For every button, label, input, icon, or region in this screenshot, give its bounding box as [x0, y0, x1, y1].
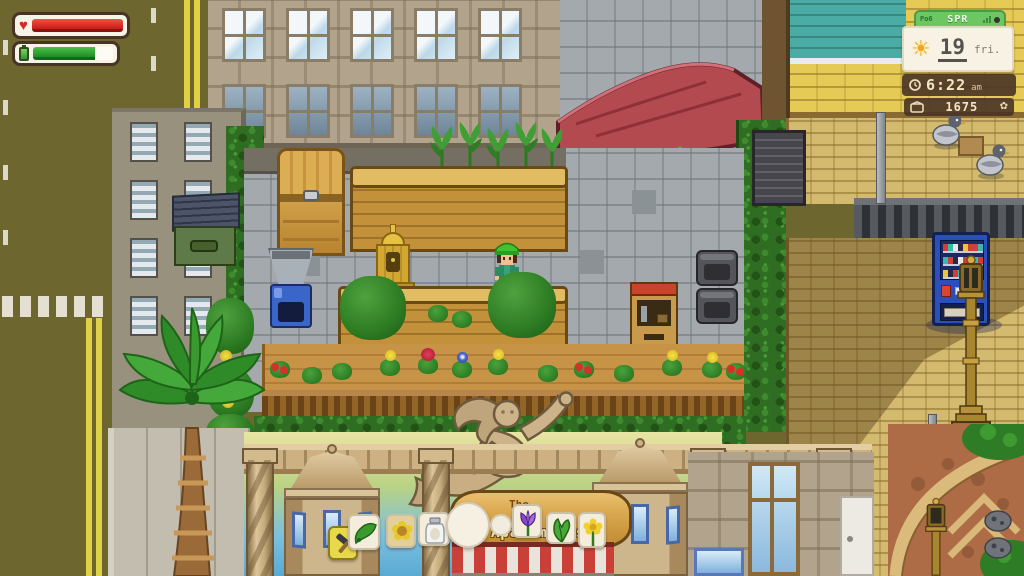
- yellow-tulip[interactable]: [702, 352, 722, 378]
- money-text: 1675: [945, 100, 978, 114]
- item-bubble-egg[interactable]: [446, 502, 490, 548]
- tall-window-mullion: [770, 462, 774, 576]
- heart-icon: ♥: [19, 18, 28, 33]
- turret-cap: [590, 444, 690, 484]
- calendar-card: ☀ 19 fri.: [902, 26, 1014, 72]
- clock-icon: [909, 79, 921, 91]
- crosswalk: [2, 296, 13, 317]
- tomato-plant[interactable]: [574, 352, 594, 378]
- office-window: [286, 84, 330, 138]
- green-plant[interactable]: [302, 358, 322, 384]
- teal-rooftop: [790, 0, 906, 64]
- camera-dot-icon: [994, 17, 1000, 23]
- office-window: [478, 8, 522, 62]
- paving-tile: [580, 250, 604, 274]
- planter-bush: [340, 276, 406, 340]
- turret-window: [631, 504, 649, 544]
- energy-bar: [12, 41, 120, 66]
- money-bar: 1675 ✿: [904, 98, 1014, 116]
- drain-pipe: [876, 112, 886, 204]
- turret-window: [292, 511, 306, 548]
- item-bubble-pearl[interactable]: [490, 514, 512, 536]
- machine-highlight: [274, 288, 282, 298]
- office-window: [222, 8, 266, 62]
- item-bubble-daffodil[interactable]: [578, 512, 606, 548]
- road-center-line: [86, 318, 92, 576]
- road-edge-dash: [151, 8, 156, 23]
- cobble-path: [888, 424, 1024, 576]
- metal-chair[interactable]: [696, 250, 738, 286]
- white-cabinet[interactable]: [840, 496, 874, 576]
- chair-seat: [704, 264, 730, 280]
- slab-window: [130, 180, 158, 220]
- office-window: [350, 84, 394, 138]
- slab-window: [184, 122, 212, 162]
- green-plant[interactable]: [332, 354, 352, 380]
- clock-hud: Po6 SPR ☀ 19 fri. 6:22 am: [902, 10, 1016, 112]
- building-corner-strip: [762, 0, 790, 134]
- road-center-line: [96, 318, 102, 576]
- turret-window: [666, 505, 680, 544]
- signal-camera-group: [983, 16, 1000, 23]
- signal-icon: [986, 18, 988, 23]
- trunk-groove: [283, 220, 339, 223]
- day-number: 19: [938, 36, 967, 61]
- metal-chair[interactable]: [696, 288, 738, 324]
- paving-tile: [632, 190, 656, 214]
- planter-bush: [488, 272, 556, 338]
- item-bubble-lettuce[interactable]: [546, 512, 576, 544]
- vending-cans-row: [943, 244, 983, 253]
- health-fill: [32, 19, 123, 32]
- road-edge-dash: [3, 40, 8, 55]
- dumpster-handle: [190, 240, 218, 252]
- time-text: 6:22: [926, 76, 966, 94]
- low-window: [694, 548, 744, 576]
- item-bubble-crocus[interactable]: [512, 504, 542, 538]
- turret-finial: [327, 444, 337, 454]
- office-window: [286, 8, 330, 62]
- trunk-groove: [283, 238, 339, 241]
- tomato-plant[interactable]: [270, 352, 290, 378]
- turret-cap: [282, 450, 382, 490]
- pigeon[interactable]: [972, 138, 1012, 182]
- shrine-dot: [391, 258, 395, 262]
- slab-window: [130, 238, 158, 278]
- dumpster[interactable]: [172, 194, 240, 268]
- planter-sprig: [452, 302, 472, 328]
- slab-window: [130, 122, 158, 162]
- green-plant[interactable]: [614, 356, 634, 382]
- wallet-icon: [910, 101, 924, 113]
- planter-sprig: [428, 296, 448, 322]
- kiosk-slot: [644, 334, 664, 340]
- office-window: [350, 8, 394, 62]
- wooden-trunk[interactable]: [277, 148, 345, 256]
- lamp-post: [948, 254, 994, 436]
- item-bubble-sunflower[interactable]: [386, 514, 416, 548]
- chair-arm: [700, 254, 734, 260]
- tall-window: [748, 462, 800, 576]
- status-left-text: Po6: [920, 15, 933, 23]
- recycling-machine[interactable]: [268, 248, 314, 328]
- road-center-line: [184, 0, 190, 112]
- yellow-tulip[interactable]: [380, 350, 400, 376]
- red-rose[interactable]: [418, 348, 438, 374]
- yellow-tulip[interactable]: [488, 349, 508, 375]
- signal-icon: [983, 20, 985, 23]
- kiosk-window: [637, 300, 671, 326]
- chair-arm: [700, 292, 734, 298]
- sun-icon: ☀: [911, 38, 931, 60]
- yellow-tulip[interactable]: [662, 350, 682, 376]
- planter-top: [350, 166, 568, 188]
- time-bar: 6:22 am: [902, 74, 1016, 96]
- tall-window-mullion: [748, 498, 800, 502]
- green-plant[interactable]: [538, 356, 558, 382]
- meridiem-text: am: [971, 83, 982, 93]
- turret-band: [284, 488, 380, 498]
- tomato-plant[interactable]: [726, 354, 746, 380]
- item-bubble-leek[interactable]: [348, 514, 380, 550]
- battery-icon: [19, 47, 29, 61]
- column: [246, 458, 274, 576]
- flower-icon: ✿: [1000, 102, 1008, 112]
- road-center-line: [194, 0, 200, 112]
- office-window: [414, 8, 458, 62]
- cabinet-knob: [847, 536, 853, 542]
- hopper-rim: [272, 251, 310, 259]
- machine-opening: [278, 302, 304, 322]
- signal-icon: [989, 16, 991, 23]
- item-bubble-jar[interactable]: [418, 512, 450, 546]
- season-text: SPR: [947, 14, 968, 25]
- hvac-unit: [752, 130, 806, 206]
- kiosk-roof: [632, 284, 676, 296]
- kiosk-goods: [657, 314, 668, 323]
- lamp-post: [918, 496, 954, 576]
- health-bar: ♥: [12, 12, 130, 39]
- turret-finial: [635, 438, 645, 448]
- energy-fill: [33, 47, 95, 60]
- weekday-text: fri.: [974, 43, 1001, 56]
- shrine-face: [386, 252, 400, 272]
- blue-flower[interactable]: [452, 352, 472, 378]
- trunk-clasp: [303, 190, 319, 201]
- game-viewport: POOL: [0, 0, 1024, 576]
- chair-seat: [704, 302, 730, 318]
- kiosk-goods: [641, 306, 647, 322]
